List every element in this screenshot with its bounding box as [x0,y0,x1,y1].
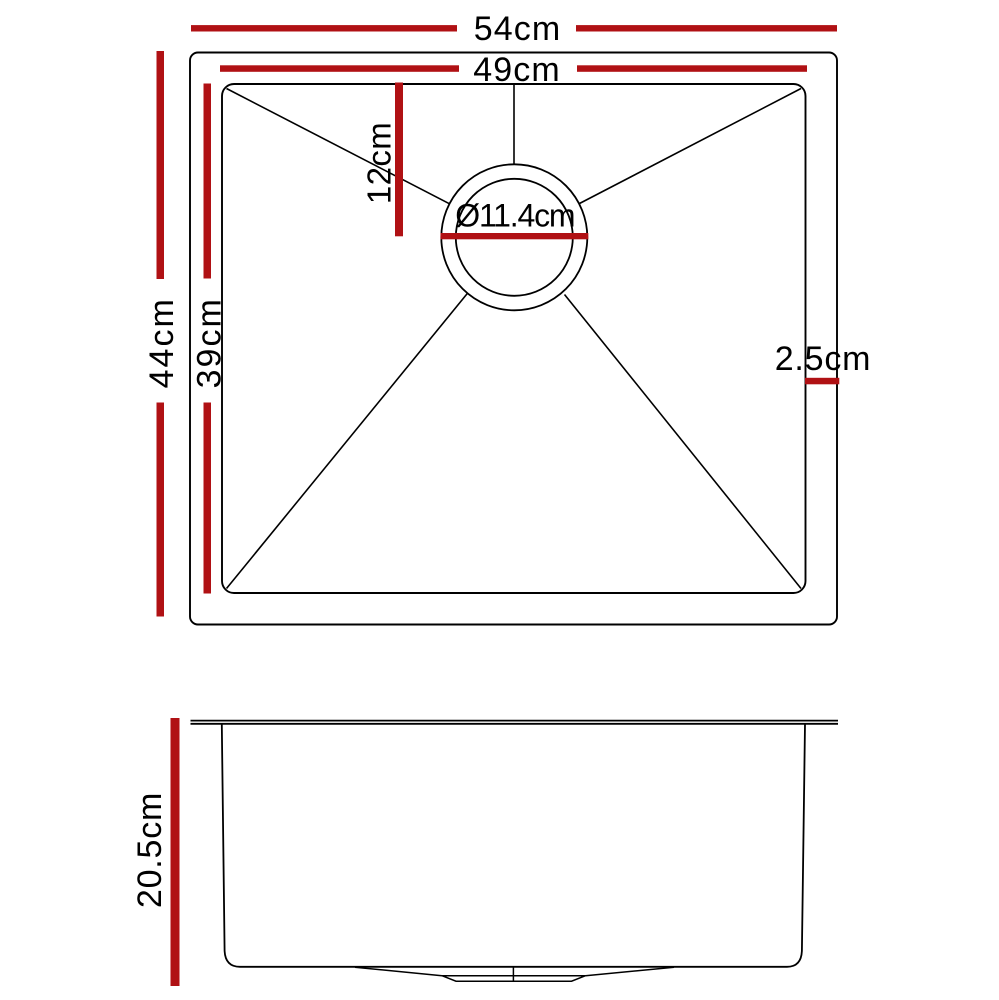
svg-text:Ø11.4cm: Ø11.4cm [455,198,574,234]
svg-text:12cm: 12cm [361,122,398,204]
svg-text:39cm: 39cm [191,297,229,388]
svg-text:20.5cm: 20.5cm [131,792,169,908]
svg-text:54cm: 54cm [474,10,562,48]
svg-text:49cm: 49cm [473,51,561,89]
svg-text:2.5cm: 2.5cm [775,340,872,378]
svg-text:44cm: 44cm [143,297,181,388]
